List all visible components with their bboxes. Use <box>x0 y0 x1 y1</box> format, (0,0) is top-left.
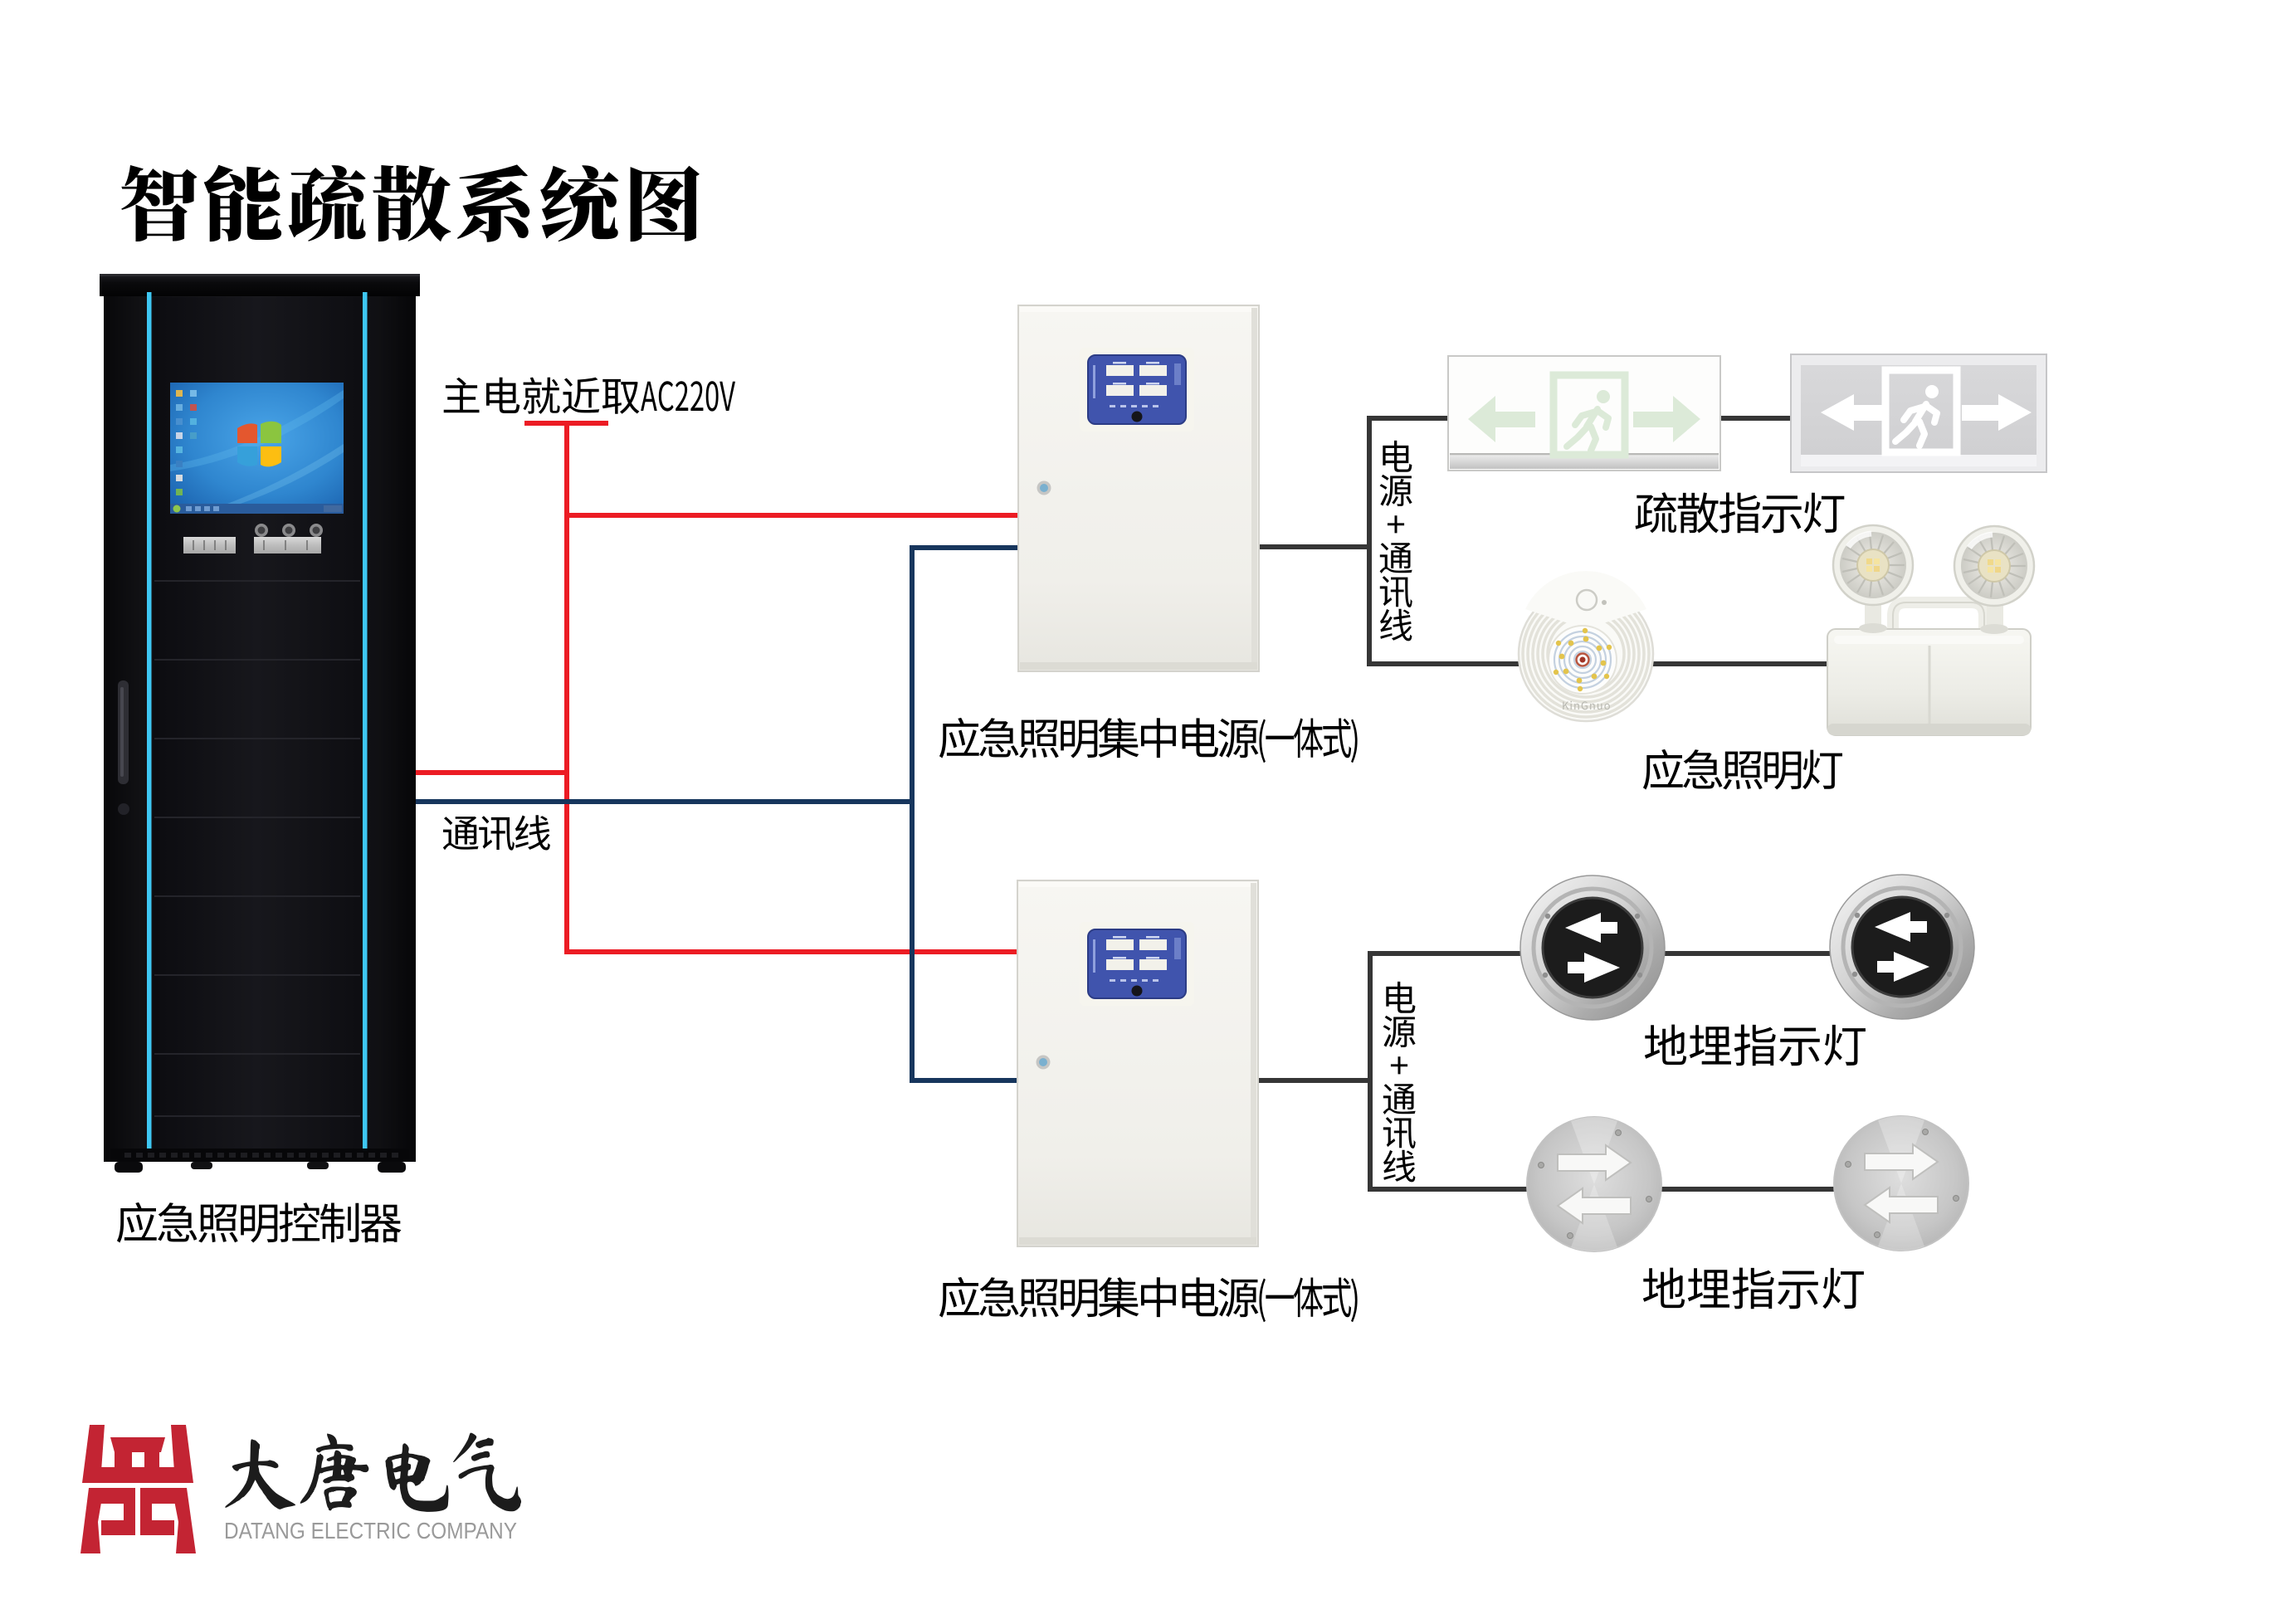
svg-text:DATANG ELECTRIC COMPANY: DATANG ELECTRIC COMPANY <box>224 1518 517 1544</box>
